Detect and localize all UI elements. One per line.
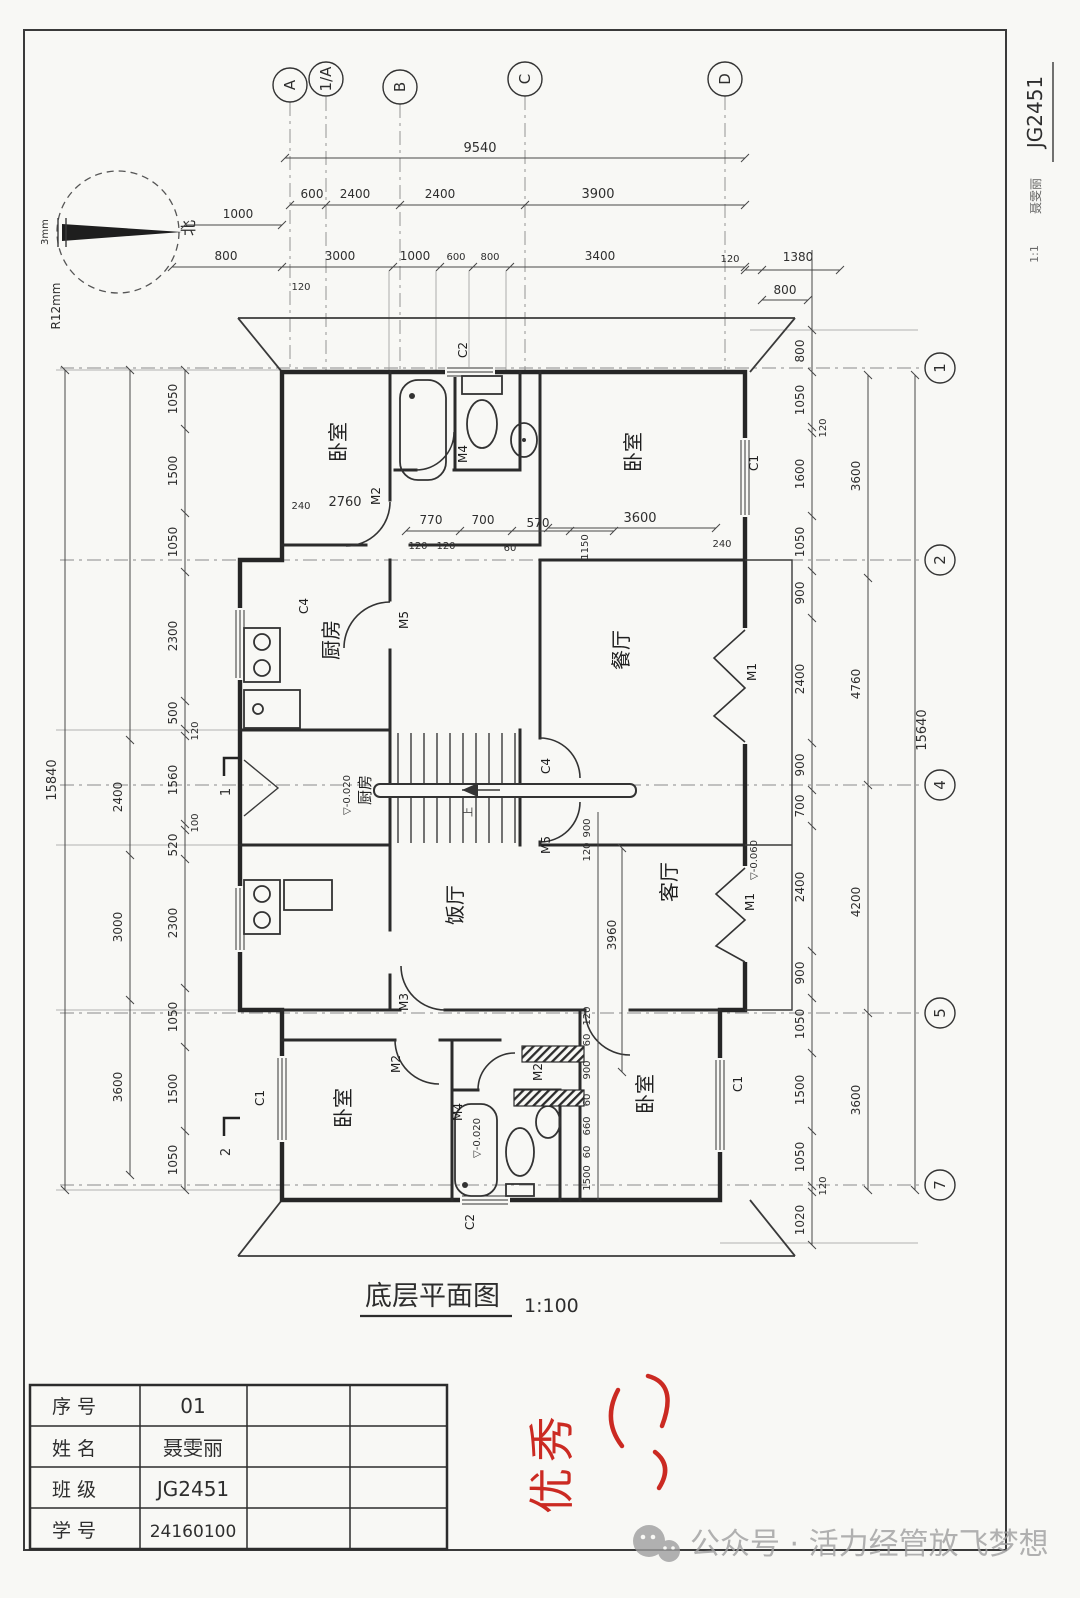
plan-title: 底层平面图 xyxy=(365,1281,500,1312)
dim-row3: 3000 xyxy=(325,249,356,263)
room-kitchen-top: 厨房 xyxy=(319,620,343,660)
titleblock-value-seq: 01 xyxy=(180,1394,205,1418)
dim-row3: 1000 xyxy=(400,249,431,263)
dim-right-inner: 1020 xyxy=(793,1205,807,1236)
dim-right-inner: 1050 xyxy=(793,1142,807,1173)
dim-left-inner: 1050 xyxy=(166,1002,180,1033)
side-note-misc: 1:1 xyxy=(1028,245,1041,263)
tag-m5-entry: M5 xyxy=(539,836,553,854)
dim-right-mid: 3600 xyxy=(849,1085,863,1116)
dim-right-inner: 1050 xyxy=(793,527,807,558)
section-label-1: 1 xyxy=(219,788,234,796)
section-label-2: 2 xyxy=(219,1148,234,1156)
grade-mark-text: 优秀 xyxy=(525,1410,579,1514)
tag-c1-bl: C1 xyxy=(253,1090,267,1106)
dim-inner: 240 xyxy=(712,539,731,550)
tag-m4-bottom: M4 xyxy=(451,1103,465,1121)
dim-inner: 60 xyxy=(504,543,517,554)
dim-row3: 800 xyxy=(480,252,499,263)
dim-left-mid: 2400 xyxy=(111,782,125,813)
tag-m1-living: M1 xyxy=(743,893,757,911)
axis-label-C: C xyxy=(516,74,534,84)
dim-left-inner: 100 xyxy=(190,813,201,832)
dim-right-800: 800 xyxy=(774,283,797,297)
room-living: 客厅 xyxy=(657,862,681,902)
elevation-living: ▽-0.060 xyxy=(749,840,760,880)
room-bedroom-tr: 卧室 xyxy=(621,432,645,472)
dim-left-1000: 1000 xyxy=(223,207,254,221)
dim-right-1380: 1380 xyxy=(783,250,814,264)
titleblock-value-name: 聂雯丽 xyxy=(163,1436,223,1460)
dim-right-inner: 2400 xyxy=(793,664,807,695)
watermark-text: 公众号 · 活力经管放飞梦想 xyxy=(690,1527,1049,1562)
side-note-name: 聂雯丽 xyxy=(1029,178,1043,214)
dim-right-mid: 4760 xyxy=(849,669,863,700)
dim-left-inner: 2300 xyxy=(166,908,180,939)
dim-right-inner: 1500 xyxy=(793,1075,807,1106)
titleblock-label-seq: 序 号 xyxy=(52,1396,96,1418)
titleblock-label-id: 学 号 xyxy=(52,1520,96,1542)
dim-inner: 120 xyxy=(582,1006,593,1025)
tag-c2-top: C2 xyxy=(456,342,470,358)
dim-inner: 120 xyxy=(582,842,593,861)
dim-right-mid: 4200 xyxy=(849,887,863,918)
dim-inner: 1150 xyxy=(580,534,591,559)
dim-inner: 60 xyxy=(582,1094,593,1107)
dim-inner: 240 xyxy=(291,501,310,512)
tag-m4-top: M4 xyxy=(456,445,470,463)
scanned-floor-plan-sheet: 3mm 北 R12mm A 1/A B C D 1 2 4 5 7 9540 6… xyxy=(0,0,1080,1598)
dim-left-inner: 120 xyxy=(190,721,201,740)
dim-row3: 800 xyxy=(215,249,238,263)
dim-inner: 3600 xyxy=(623,511,656,526)
room-bedroom-bl: 卧室 xyxy=(331,1088,355,1128)
tag-m3-bl: M3 xyxy=(397,993,411,1011)
side-note-class-code: JG2451 xyxy=(1023,76,1047,150)
dim-inner: 120 xyxy=(436,541,455,552)
dim-right-inner: 120 xyxy=(818,1176,829,1195)
dim-inner: 3960 xyxy=(605,920,619,951)
dim-right-inner: 800 xyxy=(793,340,807,363)
tag-m2-tl: M2 xyxy=(369,487,383,505)
dim-left-inner: 1050 xyxy=(166,527,180,558)
dim-row2: 600 xyxy=(301,187,324,201)
duct-shaft xyxy=(522,1046,584,1062)
dim-left-inner: 2300 xyxy=(166,621,180,652)
wechat-icon-bubble xyxy=(658,1540,680,1562)
axis-label-A: A xyxy=(281,79,299,90)
dim-right-mid: 3600 xyxy=(849,461,863,492)
plan-scale: 1:100 xyxy=(524,1295,579,1317)
compass-radius-label: R12mm xyxy=(49,283,63,330)
titleblock-value-class: JG2451 xyxy=(155,1477,229,1501)
dim-right-outer: 15640 xyxy=(915,709,930,750)
compass-width-label: 3mm xyxy=(40,219,51,245)
dim-left-mid: 3600 xyxy=(111,1072,125,1103)
duct-shaft xyxy=(514,1090,584,1106)
axis-label-D: D xyxy=(716,73,734,85)
dim-right-inner: 900 xyxy=(793,962,807,985)
elevation-bath: ▽-0.020 xyxy=(472,1118,483,1158)
dim-right-inner: 900 xyxy=(793,754,807,777)
room-kitchen-mid: 厨房 xyxy=(356,775,374,805)
tag-m2-bl: M2 xyxy=(389,1055,403,1073)
dim-left-inner: 1050 xyxy=(166,384,180,415)
dim-inner: 120 xyxy=(408,541,427,552)
dim-right-inner: 120 xyxy=(818,418,829,437)
dim-row3: 600 xyxy=(446,252,465,263)
room-bedroom-br: 卧室 xyxy=(633,1074,657,1114)
tag-c1-tr: C1 xyxy=(747,455,761,471)
dim-right-120: 120 xyxy=(720,254,739,265)
room-dining: 餐厅 xyxy=(609,630,633,670)
paper xyxy=(0,0,1080,1598)
titleblock-label-name: 姓 名 xyxy=(52,1438,96,1460)
dim-right-inner: 700 xyxy=(793,795,807,818)
tag-m5-kitchen: M5 xyxy=(397,611,411,629)
dim-right-inner: 1050 xyxy=(793,385,807,416)
tag-m2-bc: M2 xyxy=(531,1063,545,1081)
dim-inner: 1500 xyxy=(582,1165,593,1190)
dim-inner: 60 xyxy=(582,1034,593,1047)
dim-inner: 2760 xyxy=(328,495,361,510)
axis-label-2: 2 xyxy=(931,555,949,565)
titleblock-value-id: 24160100 xyxy=(150,1522,237,1542)
dim-sub-120: 120 xyxy=(291,282,310,293)
titleblock-label-class: 班 级 xyxy=(52,1479,96,1501)
dim-left-outer: 15840 xyxy=(45,759,60,800)
axis-label-B: B xyxy=(391,82,409,92)
elevation-kitchen: ▽-0.020 xyxy=(342,775,353,815)
watermark: 公众号 · 活力经管放飞梦想 xyxy=(633,1525,1049,1562)
tag-m1-dining: M1 xyxy=(745,663,759,681)
dim-left-inner: 1560 xyxy=(166,765,180,796)
dim-row2: 3900 xyxy=(581,187,614,202)
room-hall: 饭厅 xyxy=(443,885,467,925)
tag-c4-kitchen: C4 xyxy=(297,598,311,614)
dim-right-inner: 1050 xyxy=(793,1009,807,1040)
dim-inner: 570 xyxy=(527,516,550,530)
dim-right-inner: 900 xyxy=(793,582,807,605)
tag-c2-bottom: C2 xyxy=(463,1214,477,1230)
dim-left-inner: 1050 xyxy=(166,1145,180,1176)
dim-inner: 900 xyxy=(582,1060,593,1079)
floor-plan-drawing: 3mm 北 R12mm A 1/A B C D 1 2 4 5 7 9540 6… xyxy=(0,0,1080,1598)
dim-inner: 60 xyxy=(582,1146,593,1159)
stair-handrail xyxy=(374,784,636,797)
axis-label-1A: 1/A xyxy=(317,66,335,92)
dim-left-inner: 520 xyxy=(166,834,180,857)
axis-label-7: 7 xyxy=(931,1180,949,1190)
stair-up-label: 上 xyxy=(463,807,475,817)
dim-row2: 2400 xyxy=(340,187,371,201)
tag-c1-br: C1 xyxy=(731,1076,745,1092)
dim-left-inner: 1500 xyxy=(166,1074,180,1105)
dim-row2: 2400 xyxy=(425,187,456,201)
axis-label-5: 5 xyxy=(931,1008,949,1018)
room-bedroom-tl: 卧室 xyxy=(326,422,350,462)
dim-inner: 900 xyxy=(582,818,593,837)
dim-right-inner: 1600 xyxy=(793,459,807,490)
dim-inner: 770 xyxy=(420,513,443,527)
dim-row3: 3400 xyxy=(585,249,616,263)
axis-label-4: 4 xyxy=(931,780,949,790)
dim-inner: 660 xyxy=(582,1116,593,1135)
dim-inner: 700 xyxy=(472,513,495,527)
axis-label-1: 1 xyxy=(931,363,949,373)
dim-total: 9540 xyxy=(463,141,496,156)
dim-left-mid: 3000 xyxy=(111,912,125,943)
dim-left-inner: 1500 xyxy=(166,456,180,487)
dim-left-inner: 500 xyxy=(166,702,180,725)
dim-right-inner: 2400 xyxy=(793,872,807,903)
tag-c4-entry: C4 xyxy=(539,758,553,774)
